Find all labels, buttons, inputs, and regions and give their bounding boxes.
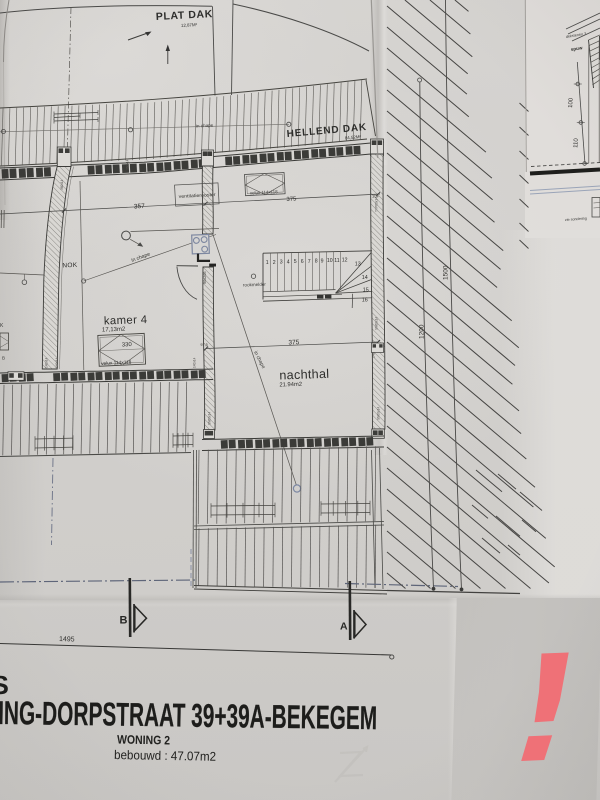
svg-text:A: A bbox=[340, 621, 348, 633]
svg-text:B: B bbox=[120, 615, 128, 627]
svg-text:17,13m2: 17,13m2 bbox=[102, 327, 126, 334]
svg-text:ING-DORPSTRAAT 39+39A-BEKEGEM: ING-DORPSTRAAT 39+39A-BEKEGEM bbox=[0, 694, 377, 736]
svg-text:3: 3 bbox=[280, 260, 283, 266]
svg-text:11: 11 bbox=[334, 258, 339, 264]
svg-text:SN60x14: SN60x14 bbox=[377, 407, 381, 420]
svg-text:spuw: spuw bbox=[570, 45, 583, 52]
svg-text:dekstenen 3: dekstenen 3 bbox=[566, 32, 587, 39]
svg-text:375: 375 bbox=[288, 339, 299, 346]
svg-text:in chape: in chape bbox=[196, 123, 214, 129]
svg-text:148: 148 bbox=[372, 352, 376, 358]
svg-text:360x14: 360x14 bbox=[126, 159, 130, 170]
svg-text:16: 16 bbox=[362, 297, 368, 303]
svg-text:330: 330 bbox=[122, 342, 133, 348]
svg-text:15: 15 bbox=[363, 287, 369, 293]
svg-text:TYP60x14: TYP60x14 bbox=[375, 197, 379, 212]
svg-text:1500: 1500 bbox=[443, 265, 450, 280]
svg-text:140x14: 140x14 bbox=[55, 357, 59, 368]
svg-text:7: 7 bbox=[308, 259, 311, 265]
svg-text:4: 4 bbox=[287, 259, 290, 265]
svg-text:rookmelder: rookmelder bbox=[243, 282, 267, 288]
svg-text:360x14: 360x14 bbox=[60, 179, 64, 190]
svg-text:bebouwd : 47.07m2: bebouwd : 47.07m2 bbox=[114, 748, 216, 764]
svg-text:velux 114x118: velux 114x118 bbox=[101, 360, 132, 367]
svg-text:6: 6 bbox=[301, 259, 304, 265]
svg-text:1495: 1495 bbox=[59, 636, 75, 643]
svg-text:10: 10 bbox=[327, 258, 333, 264]
svg-text:151: 151 bbox=[372, 193, 380, 199]
svg-text:110: 110 bbox=[573, 138, 580, 149]
svg-text:357: 357 bbox=[134, 203, 146, 211]
svg-text:in chape: in chape bbox=[131, 251, 152, 263]
svg-text:100: 100 bbox=[568, 97, 575, 108]
svg-text:PLAT DAK: PLAT DAK bbox=[156, 8, 214, 23]
svg-text:2: 2 bbox=[273, 260, 276, 266]
svg-text:12: 12 bbox=[342, 258, 348, 264]
svg-text:1200: 1200 bbox=[419, 324, 426, 339]
svg-text:140x14: 140x14 bbox=[193, 357, 197, 368]
svg-text:9: 9 bbox=[321, 258, 324, 264]
svg-text:K: K bbox=[0, 323, 4, 329]
svg-text:NOK: NOK bbox=[62, 262, 78, 270]
svg-text:12,87M²: 12,87M² bbox=[181, 22, 198, 28]
svg-text:SN60x14: SN60x14 bbox=[375, 317, 379, 330]
svg-text:13: 13 bbox=[355, 261, 361, 267]
svg-text:97,5: 97,5 bbox=[200, 343, 208, 347]
svg-text:kamer 4: kamer 4 bbox=[104, 314, 148, 328]
svg-text:SN60x14: SN60x14 bbox=[208, 412, 212, 425]
svg-text:14: 14 bbox=[362, 275, 368, 281]
svg-text:nachthal: nachthal bbox=[279, 367, 329, 383]
svg-text:5: 5 bbox=[294, 259, 297, 265]
svg-text:in chape: in chape bbox=[252, 350, 266, 370]
svg-text:WONING 2: WONING 2 bbox=[117, 733, 170, 748]
svg-text:90x205: 90x205 bbox=[203, 272, 207, 284]
svg-text:zie sondering: zie sondering bbox=[565, 216, 587, 222]
svg-text:21.94m2: 21.94m2 bbox=[279, 382, 302, 389]
svg-text:8: 8 bbox=[315, 259, 318, 265]
svg-text:1: 1 bbox=[266, 260, 269, 266]
svg-text:375: 375 bbox=[286, 196, 297, 203]
svg-text:B: B bbox=[2, 356, 5, 361]
svg-text:140x14: 140x14 bbox=[45, 357, 49, 368]
